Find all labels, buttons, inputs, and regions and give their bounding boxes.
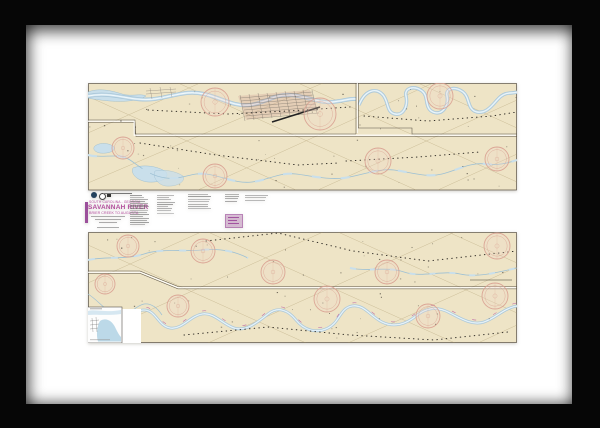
magenta-table — [225, 214, 243, 228]
notes-columns — [88, 190, 517, 232]
inset-map — [88, 307, 141, 343]
nautical-chart-print: SOUTH CAROLINA - GEORGIA SAVANNAH RIVER … — [88, 83, 517, 343]
chart-title-block: SOUTH CAROLINA - GEORGIA SAVANNAH RIVER … — [88, 190, 517, 232]
picture-frame: SOUTH CAROLINA - GEORGIA SAVANNAH RIVER … — [0, 0, 600, 428]
